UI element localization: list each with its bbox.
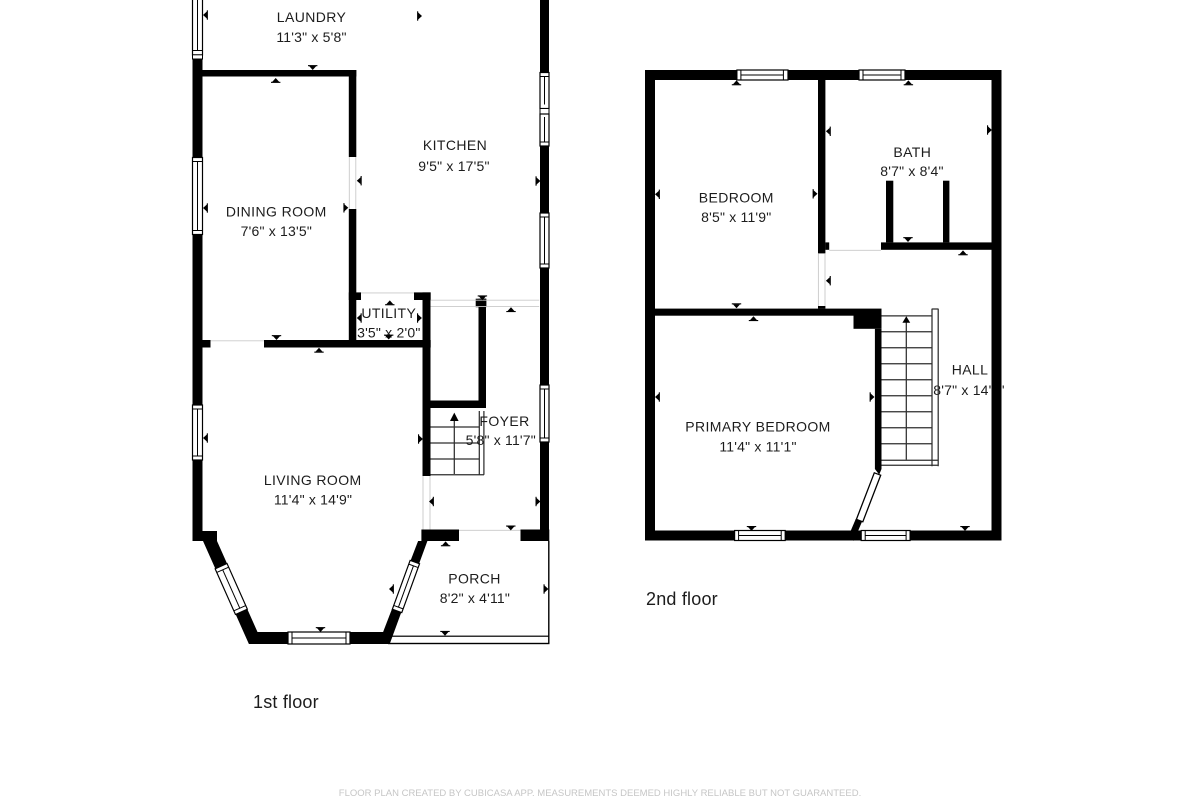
svg-text:5'8" x 11'7": 5'8" x 11'7": [466, 432, 536, 448]
svg-text:9'5" x 17'5": 9'5" x 17'5": [418, 158, 489, 174]
svg-text:KITCHEN: KITCHEN: [423, 137, 487, 153]
svg-text:FOYER: FOYER: [479, 413, 529, 429]
svg-text:PRIMARY BEDROOM: PRIMARY BEDROOM: [685, 419, 831, 435]
svg-text:HALL: HALL: [952, 362, 989, 378]
svg-text:11'4" x 11'1": 11'4" x 11'1": [719, 439, 796, 455]
svg-text:1st floor: 1st floor: [253, 692, 319, 712]
svg-text:FLOOR PLAN CREATED BY CUBICASA: FLOOR PLAN CREATED BY CUBICASA APP. MEAS…: [339, 788, 861, 799]
svg-text:11'4" x 14'9": 11'4" x 14'9": [274, 492, 352, 508]
svg-text:2nd floor: 2nd floor: [646, 589, 718, 609]
svg-text:8'5" x 11'9": 8'5" x 11'9": [701, 209, 771, 225]
svg-text:8'7" x 8'4": 8'7" x 8'4": [880, 163, 943, 179]
svg-text:7'6" x 13'5": 7'6" x 13'5": [241, 223, 312, 239]
svg-text:PORCH: PORCH: [448, 571, 501, 587]
svg-text:11'3" x 5'8": 11'3" x 5'8": [276, 29, 346, 45]
svg-text:LIVING ROOM: LIVING ROOM: [264, 472, 362, 488]
svg-text:UTILITY: UTILITY: [361, 305, 416, 321]
svg-text:LAUNDRY: LAUNDRY: [277, 9, 347, 25]
svg-text:8'2" x 4'11": 8'2" x 4'11": [440, 590, 510, 606]
svg-text:BEDROOM: BEDROOM: [699, 190, 774, 206]
svg-text:BATH: BATH: [893, 144, 931, 160]
svg-text:DINING ROOM: DINING ROOM: [226, 204, 327, 220]
